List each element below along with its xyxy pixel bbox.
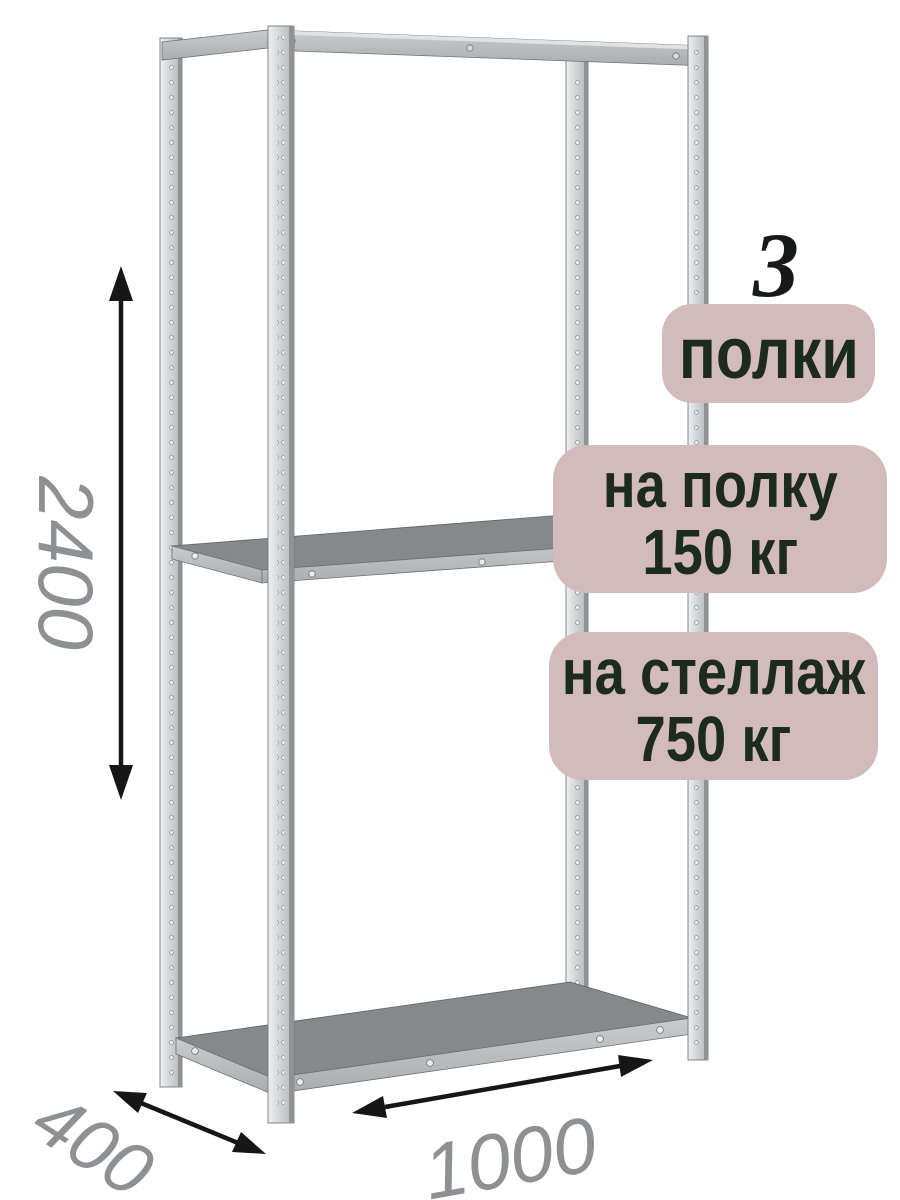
shelf-count-number: 3 [701, 215, 851, 315]
rack-post-back-left [160, 38, 182, 1087]
height-arrow [109, 266, 133, 800]
height-dimension-label: 2400 [21, 453, 111, 673]
rack-post-front-left [268, 26, 294, 1123]
per-rack-load-label: на стеллаж [562, 639, 865, 706]
per-rack-load-badge: на стеллаж 750 кг [549, 632, 878, 780]
product-image: 2400 400 1000 3 полки на полку 150 кг на… [0, 0, 900, 1200]
per-shelf-load-value: 150 кг [603, 519, 838, 586]
per-shelf-load-badge: на полку 150 кг [553, 445, 887, 593]
shelving-rack-illustration [0, 0, 900, 1200]
rack-shelf-top [162, 30, 708, 66]
shelves-count-badge: полки [662, 304, 875, 403]
per-shelf-load-label: на полку [603, 452, 838, 519]
rack-shelf-bottom [176, 982, 692, 1094]
per-rack-load-value: 750 кг [562, 706, 865, 773]
shelves-count-badge-label: полки [679, 318, 859, 390]
